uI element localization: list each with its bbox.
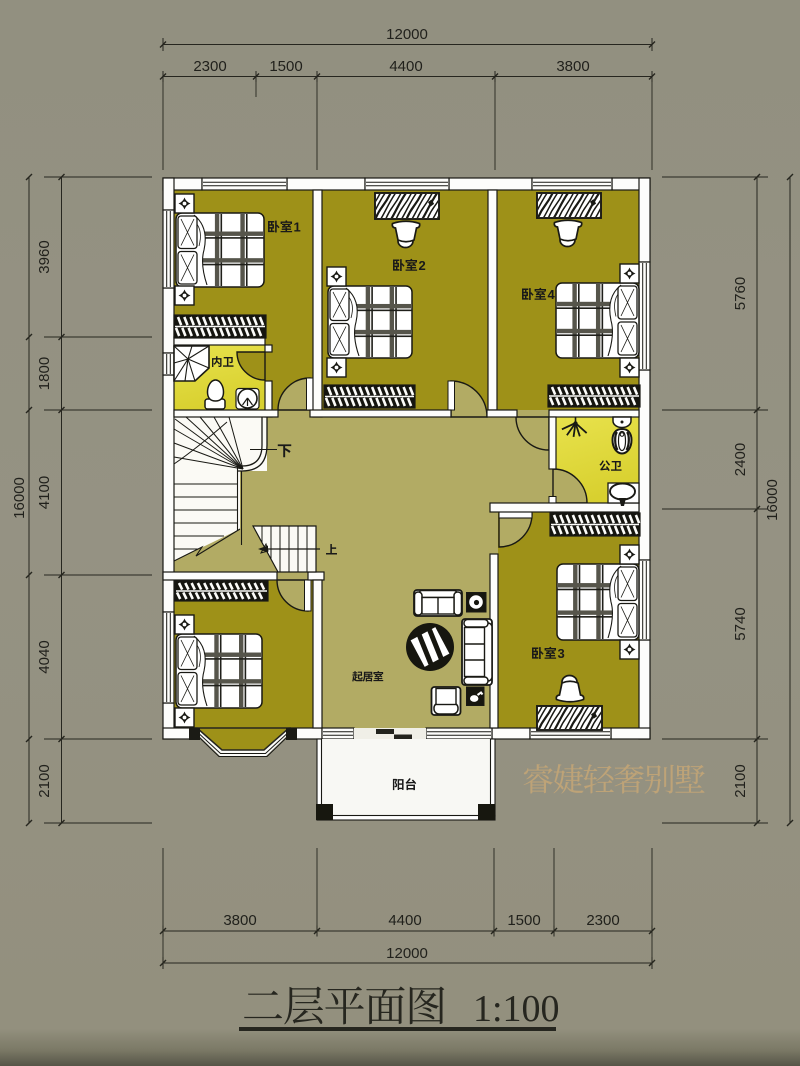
svg-text:5740: 5740: [732, 607, 749, 640]
svg-text:12000: 12000: [386, 945, 428, 962]
svg-text:2100: 2100: [732, 764, 749, 797]
svg-text:1500: 1500: [269, 58, 302, 75]
svg-text:1800: 1800: [36, 357, 53, 390]
svg-text:2100: 2100: [36, 764, 53, 797]
svg-text:4100: 4100: [36, 476, 53, 509]
svg-text:1: 1: [294, 220, 301, 235]
svg-text:2300: 2300: [586, 912, 619, 929]
svg-text:16000: 16000: [11, 477, 28, 519]
svg-text:4400: 4400: [389, 58, 422, 75]
svg-text:3960: 3960: [36, 240, 53, 273]
svg-text:2300: 2300: [193, 58, 226, 75]
svg-text:16000: 16000: [764, 479, 781, 521]
svg-text:3: 3: [558, 646, 565, 661]
svg-text:3800: 3800: [556, 58, 589, 75]
svg-text:2: 2: [419, 258, 426, 273]
svg-text:4040: 4040: [36, 640, 53, 673]
svg-text:5760: 5760: [732, 277, 749, 310]
svg-text:2400: 2400: [732, 443, 749, 476]
svg-text:4400: 4400: [388, 912, 421, 929]
svg-text:1:100: 1:100: [473, 988, 560, 1030]
svg-text:3800: 3800: [223, 912, 256, 929]
svg-text:1500: 1500: [507, 912, 540, 929]
svg-text:12000: 12000: [386, 26, 428, 43]
svg-text:4: 4: [548, 287, 556, 302]
